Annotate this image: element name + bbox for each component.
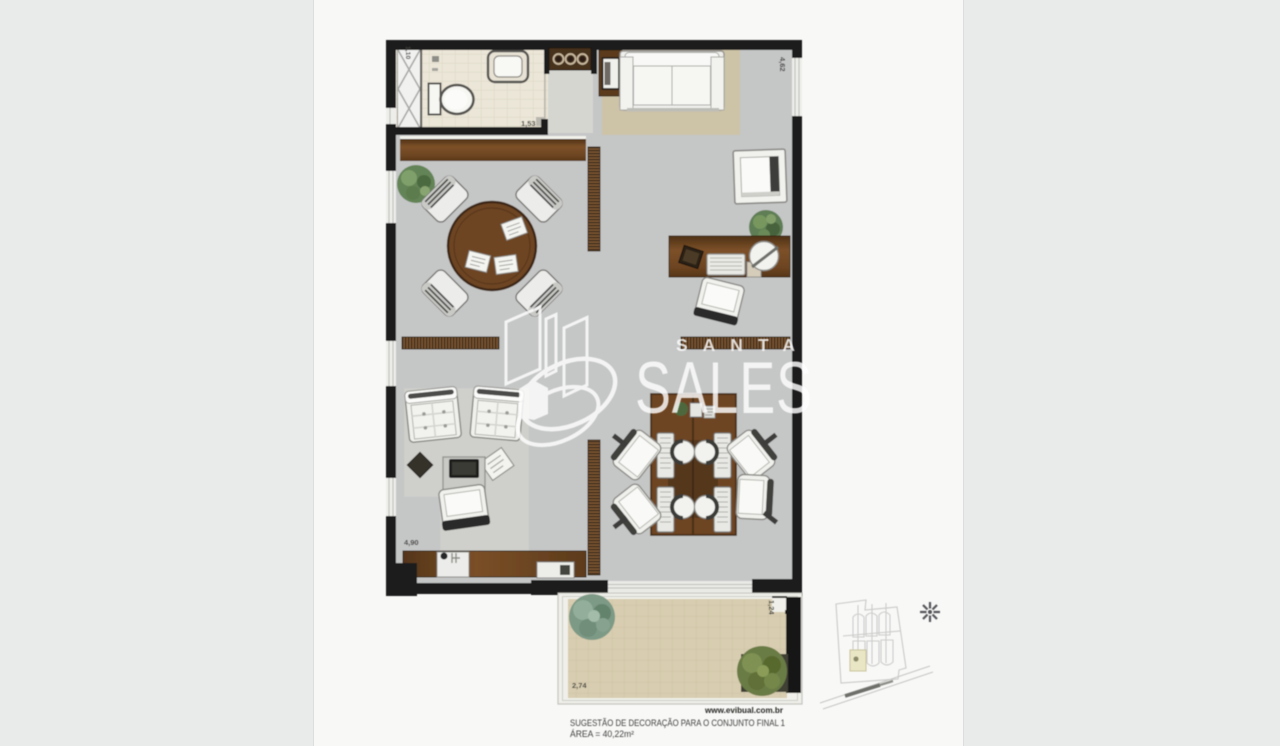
- svg-text:1,53: 1,53: [521, 119, 536, 128]
- svg-text:www.evibual.com.br: www.evibual.com.br: [704, 705, 784, 715]
- svg-text:1,24: 1,24: [767, 600, 776, 615]
- svg-text:4,90: 4,90: [404, 538, 419, 547]
- svg-text:4,62: 4,62: [778, 57, 787, 72]
- svg-text:1,10: 1,10: [404, 46, 411, 59]
- svg-text:ÁREA = 40,22m²: ÁREA = 40,22m²: [570, 729, 634, 739]
- svg-text:2,74: 2,74: [572, 681, 587, 690]
- svg-text:SUGESTÃO DE DECORAÇÃO PARA O C: SUGESTÃO DE DECORAÇÃO PARA O CONJUNTO FI…: [570, 718, 785, 728]
- svg-text:SALES: SALES: [635, 347, 813, 429]
